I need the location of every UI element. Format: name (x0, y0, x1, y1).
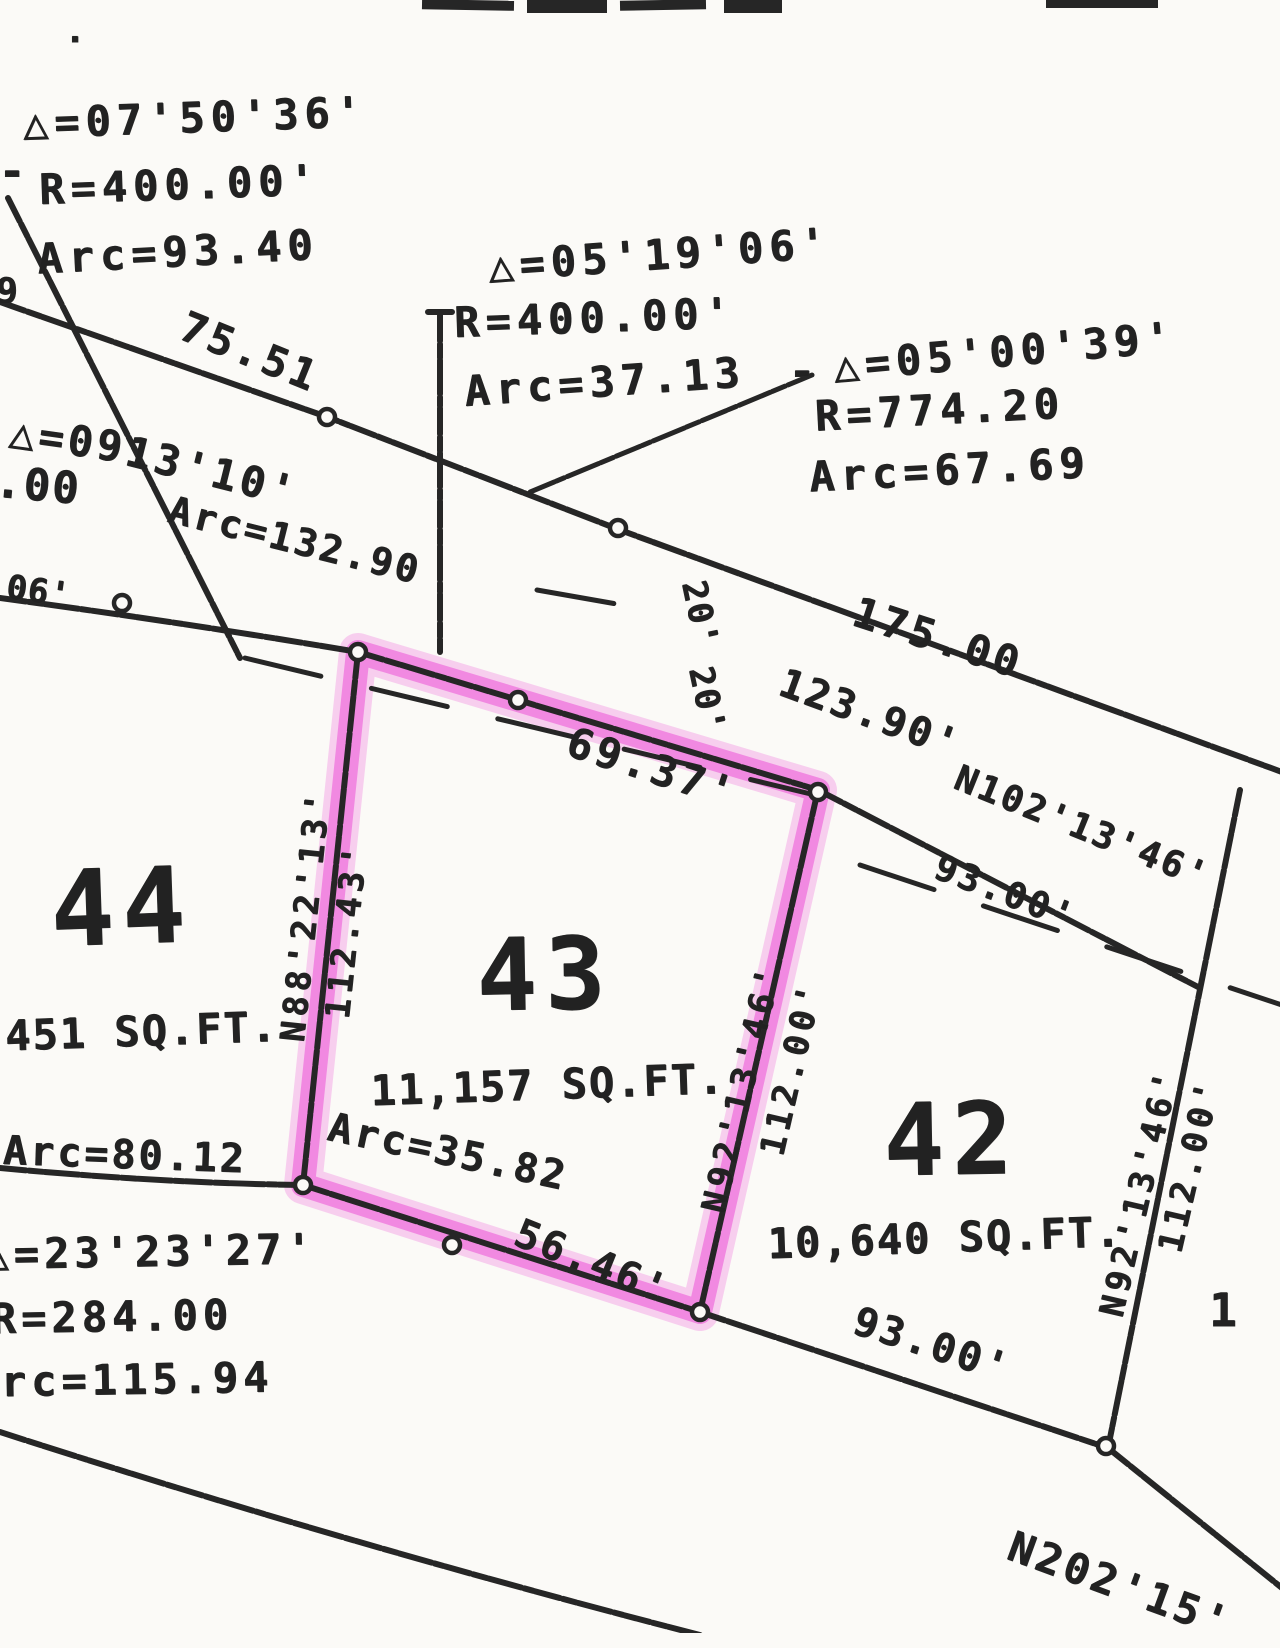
dim-56-46: 56.46' (509, 1213, 675, 1311)
curve-c-radius: R=774.20 (814, 382, 1066, 437)
curve-c-arc: Arc=67.69 (808, 442, 1091, 499)
curve-a-radius: R=400.00' (39, 159, 322, 211)
curve-e-delta: △=23'23'27' (0, 1228, 317, 1276)
dim-123-90: 123.90' (774, 663, 966, 765)
lot-44-area: ,451 SQ.FT. (0, 1006, 279, 1058)
arc-35-82: Arc=35.82 (325, 1107, 572, 1197)
curve-a-dash: - (0, 150, 25, 194)
dim-175-00: 175.00 (848, 591, 1028, 685)
lot-41-number-partial: 1 (1209, 1287, 1237, 1333)
curve-d-radius-frag: .00 (0, 460, 82, 511)
curve-b-arc: Arc=37.13 (463, 351, 747, 413)
scan-speck: · (65, 23, 85, 57)
curve-a-arc: Arc=93.40 (36, 224, 319, 281)
lot-43-number: 43 (476, 924, 614, 1026)
dim-75-51: 75.51 (174, 305, 326, 399)
label-layer: △=07'50'36'-R=400.00'Arc=93.40△=05'19'06… (0, 0, 1280, 1633)
curve-c-delta: △=05'00'39' (832, 316, 1179, 388)
bearing-n202: N202'15' (1003, 1525, 1238, 1645)
scanned-plat-page: { "document": { "kind_label": "plat-surv… (0, 0, 1280, 1633)
curve-b-radius: R=400.00' (454, 292, 737, 344)
lot-42-area: 10,640 SQ.FT. (767, 1211, 1123, 1265)
lot-44-number: 44 (49, 853, 195, 963)
edge-frag-06: .06' (0, 567, 73, 613)
arc-80-12: Arc=80.12 (3, 1131, 248, 1179)
curve-d-arc: Arc=132.90 (165, 490, 425, 589)
curve-a-delta: △=07'50'36' (22, 91, 367, 145)
easement-20-lower: 20' (683, 663, 730, 736)
curve-e-arc: Arc=115.94 (0, 1356, 274, 1403)
easement-20-upper: 20' (676, 577, 723, 650)
curve-e-radius: R=284.00 (0, 1294, 233, 1340)
curve-b-delta: △=05'19'06' (487, 222, 833, 288)
dim-93-00-upper: 93.00' (929, 850, 1080, 937)
lot-42-number: 42 (883, 1089, 1021, 1191)
dim-93-00-lower: 93.00' (849, 1301, 1016, 1389)
curve-c-dash: - (789, 350, 816, 394)
lot-43-area: 11,157 SQ.FT. (370, 1058, 726, 1112)
dim-69-37: 69.37' (562, 721, 742, 815)
edge-frag-9: 9 (0, 274, 18, 310)
